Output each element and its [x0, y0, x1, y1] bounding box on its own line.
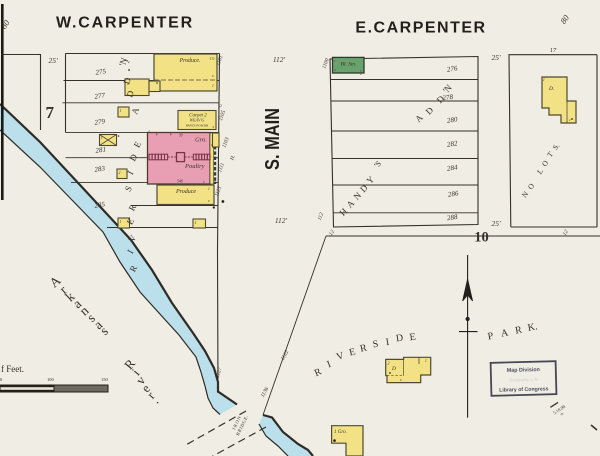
- svg-text:f Feet.: f Feet.: [1, 364, 24, 374]
- svg-text:WEAV'G: WEAV'G: [190, 118, 205, 123]
- svg-text:4: 4: [334, 68, 336, 72]
- svg-text:1: 1: [120, 109, 122, 113]
- svg-text:284: 284: [446, 163, 458, 172]
- svg-text:Geography a. M: Geography a. M: [509, 377, 538, 383]
- svg-text:x: x: [359, 72, 362, 76]
- svg-text:Gro.: Gro.: [195, 137, 207, 144]
- svg-text:x: x: [210, 143, 213, 147]
- svg-text:100: 100: [47, 377, 55, 382]
- svg-text:1½: 1½: [210, 56, 215, 61]
- svg-text:x: x: [211, 74, 214, 78]
- svg-text:2: 2: [119, 171, 121, 175]
- svg-text:K.: K.: [527, 321, 538, 334]
- svg-text:E.CARPENTER: E.CARPENTER: [355, 20, 486, 37]
- svg-text:Poultry: Poultry: [184, 163, 205, 170]
- svg-text:Produce: Produce: [175, 189, 196, 195]
- svg-text:112': 112': [273, 55, 286, 64]
- svg-text:x: x: [212, 125, 215, 129]
- svg-text:281: 281: [95, 145, 107, 154]
- svg-text:150: 150: [101, 377, 109, 382]
- svg-text:2: 2: [388, 362, 390, 366]
- svg-text:7: 7: [45, 103, 54, 122]
- svg-text:288: 288: [446, 213, 458, 222]
- svg-text:277: 277: [94, 91, 106, 100]
- svg-text:D.: D.: [548, 86, 554, 92]
- svg-text:1: 1: [334, 59, 336, 63]
- svg-text:1: 1: [148, 130, 150, 134]
- svg-text:275: 275: [95, 67, 107, 76]
- svg-text:278: 278: [442, 93, 454, 102]
- svg-text:1: 1: [208, 187, 210, 191]
- svg-text:1: 1: [101, 136, 103, 140]
- svg-text:25': 25': [48, 56, 58, 65]
- svg-text:Map Division: Map Division: [507, 367, 540, 374]
- svg-text:283: 283: [94, 164, 106, 173]
- svg-text:10: 10: [474, 230, 489, 246]
- svg-text:x: x: [202, 180, 205, 184]
- svg-text:x: x: [399, 378, 402, 382]
- svg-text:1 Gro.: 1 Gro.: [334, 430, 347, 435]
- svg-text:x: x: [207, 199, 210, 203]
- svg-text:S. MAIN: S. MAIN: [262, 108, 284, 170]
- svg-text:112': 112': [275, 216, 288, 225]
- svg-text:276: 276: [446, 64, 458, 73]
- svg-text:1: 1: [543, 78, 545, 82]
- svg-text:D: D: [391, 366, 396, 372]
- svg-text:Produce.: Produce.: [179, 58, 201, 64]
- svg-text:286: 286: [447, 189, 459, 198]
- svg-text:285: 285: [94, 200, 106, 209]
- svg-text:548: 548: [177, 180, 183, 184]
- svg-text:282: 282: [446, 139, 458, 148]
- svg-text:1: 1: [212, 84, 214, 88]
- svg-text:1: 1: [120, 220, 122, 224]
- svg-text:D: D: [395, 333, 404, 345]
- svg-text:280: 280: [446, 115, 458, 124]
- svg-text:17: 17: [550, 47, 557, 54]
- svg-text:25': 25': [491, 53, 501, 62]
- svg-text:1: 1: [195, 221, 197, 225]
- svg-text:PANTS POWDR: PANTS POWDR: [185, 124, 209, 128]
- svg-text:99: 99: [179, 134, 183, 138]
- svg-text:1: 1: [425, 359, 427, 363]
- svg-text:W.CARPENTER: W.CARPENTER: [56, 15, 194, 32]
- svg-text:Bl. Sm.: Bl. Sm.: [341, 62, 357, 68]
- svg-text:25': 25': [491, 219, 501, 228]
- svg-text:279: 279: [94, 117, 106, 126]
